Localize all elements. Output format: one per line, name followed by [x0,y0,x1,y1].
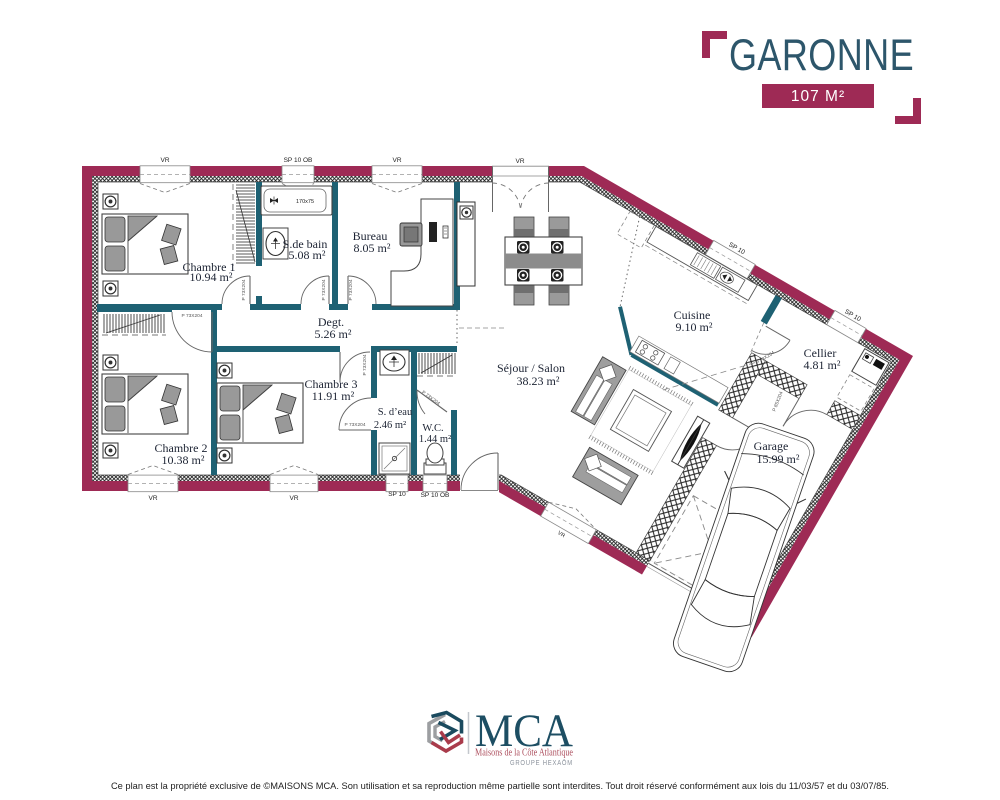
svg-text:VR: VR [515,158,524,165]
svg-text:P 73X204: P 73X204 [182,313,203,319]
svg-text:SP 10 OB: SP 10 OB [421,492,450,499]
svg-text:GROUPE HEXAŌM: GROUPE HEXAŌM [510,758,573,767]
svg-text:GARONNE: GARONNE [729,29,914,80]
svg-text:2.46 m²: 2.46 m² [374,420,406,431]
svg-text:Ce plan est la propriété exclu: Ce plan est la propriété exclusive de ©M… [111,781,889,791]
svg-text:107 M²: 107 M² [791,88,845,105]
svg-text:10.94 m²: 10.94 m² [190,270,233,284]
svg-text:1.44 m²: 1.44 m² [419,434,451,445]
svg-text:5.26 m²: 5.26 m² [315,327,352,341]
svg-text:P 73X204: P 73X204 [241,279,247,300]
svg-text:11.91 m²: 11.91 m² [312,389,355,403]
svg-text:S. d’eau: S. d’eau [378,407,413,418]
svg-text:P 73X204: P 73X204 [345,422,366,428]
svg-text:5.08 m²: 5.08 m² [289,248,326,262]
svg-text:VR: VR [160,157,169,164]
svg-text:10.38 m²: 10.38 m² [162,453,205,467]
svg-text:Séjour / Salon: Séjour / Salon [497,361,565,375]
svg-text:38.23 m²: 38.23 m² [517,374,560,388]
svg-text:Garage: Garage [754,439,789,453]
svg-text:SP 10 OB: SP 10 OB [284,157,313,164]
svg-text:170x75: 170x75 [296,199,314,205]
svg-text:P 73X204: P 73X204 [348,279,354,300]
svg-text:VR: VR [392,157,401,164]
svg-text:15.99 m²: 15.99 m² [757,452,800,466]
svg-text:W.C.: W.C. [422,423,443,434]
svg-text:P 73X204: P 73X204 [321,279,327,300]
svg-text:8.05 m²: 8.05 m² [354,241,391,255]
svg-text:Maisons de la Côte Atlantique: Maisons de la Côte Atlantique [475,747,573,759]
svg-text:9.10 m²: 9.10 m² [676,320,713,334]
svg-text:P 73X204: P 73X204 [362,354,368,375]
svg-text:SP 10: SP 10 [388,491,406,498]
svg-text:VR: VR [148,495,157,502]
svg-text:VR: VR [289,495,298,502]
svg-text:4.81 m²: 4.81 m² [804,358,841,372]
